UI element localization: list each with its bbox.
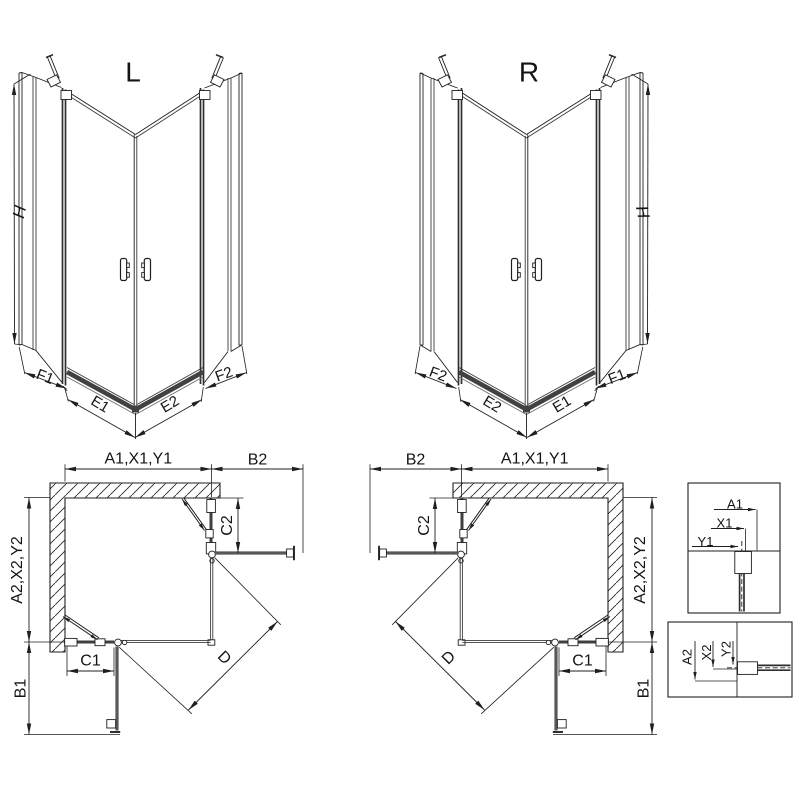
label-d: D — [439, 648, 459, 668]
drawing-line — [231, 73, 242, 78]
corner-cap — [132, 406, 139, 413]
dimension-line — [396, 622, 485, 711]
drawing-line — [201, 387, 203, 402]
label-top-width: A1,X1,Y1 — [501, 450, 569, 467]
hinge-block — [200, 91, 211, 100]
label-b2: B2 — [406, 451, 426, 468]
drawing-line — [46, 55, 53, 58]
drawing-line — [481, 647, 554, 714]
door-end-bracket — [287, 549, 294, 557]
support-arm — [64, 615, 99, 638]
support-arm — [574, 615, 609, 638]
drawing-line — [415, 346, 420, 374]
drawing-line — [640, 73, 643, 74]
support-arm — [469, 499, 492, 531]
label-height: H — [9, 203, 30, 220]
drawing-line — [231, 345, 242, 352]
drawing-line — [459, 94, 527, 138]
wall-profile — [458, 500, 467, 513]
drawing-line — [19, 73, 22, 74]
drawing-line — [609, 55, 616, 58]
door-end-bracket — [380, 549, 387, 557]
drawing-line — [136, 94, 204, 138]
drawing-line — [22, 345, 36, 351]
drawing-line — [215, 558, 281, 625]
door-handle — [557, 720, 566, 728]
support-arm — [576, 617, 611, 640]
drawing-line — [119, 647, 192, 714]
label-a2: A2 — [680, 649, 695, 665]
hinge-knob — [458, 551, 465, 558]
drawing-line — [136, 91, 204, 135]
wall-profile — [738, 662, 758, 675]
hinge-knob — [552, 639, 559, 646]
support-bracket — [206, 530, 213, 538]
label-b1: B1 — [13, 679, 30, 699]
drawing-line — [459, 91, 527, 135]
door-handle — [533, 273, 536, 278]
label-height: H — [632, 204, 653, 221]
hinge-block — [61, 91, 72, 100]
support-bracket — [568, 639, 578, 646]
bottom-sill — [459, 372, 595, 410]
drawing-line — [216, 55, 223, 58]
view-title: L — [125, 57, 141, 88]
view-title: R — [519, 57, 539, 88]
support-arm — [63, 617, 98, 640]
label-c1: C1 — [572, 653, 593, 670]
door-handle — [127, 273, 130, 278]
hinge-knob — [115, 639, 122, 646]
hinge-block — [591, 91, 602, 100]
label-y2: Y2 — [719, 641, 734, 657]
door-handle — [144, 259, 150, 281]
dimension-line — [189, 622, 278, 711]
drawing-line — [527, 91, 597, 135]
drawing-line — [66, 94, 136, 138]
drawing-line — [637, 347, 643, 374]
wall-section — [453, 483, 623, 652]
drawing-line — [19, 347, 25, 374]
wall-profile — [596, 638, 608, 646]
support-bracket — [460, 530, 467, 538]
support-bracket — [95, 639, 105, 646]
door-handle — [533, 263, 536, 268]
wall-profile — [207, 500, 216, 513]
bottom-sill — [67, 372, 203, 410]
wall-profile — [65, 638, 77, 646]
support-arm — [184, 498, 207, 530]
shower-enclosure-diagram-canvas: HF1E1E2F2LHF2E2E1F1RA1,X1,Y1B2A2,X2,Y2B1… — [0, 0, 800, 800]
support-arm — [467, 498, 490, 530]
drawing-line — [459, 387, 461, 402]
drawing-line — [420, 73, 423, 74]
door-handle — [121, 259, 127, 281]
label-side-depth: A2,X2,Y2 — [9, 536, 26, 604]
wall-profile — [735, 552, 752, 574]
drawing-line — [392, 558, 458, 625]
drawing-line — [439, 55, 446, 58]
drawing-line — [242, 346, 247, 374]
door-handle — [142, 263, 145, 268]
technical-drawing-page: HF1E1E2F2LHF2E2E1F1RA1,X1,Y1B2A2,X2,Y2B1… — [0, 0, 800, 800]
plan-view-right: A1,X1,Y1B2A2,X2,Y2B1C2C1D — [370, 450, 657, 734]
hinge-knob — [209, 551, 216, 558]
drawing-line — [626, 345, 640, 351]
label-segment: F1 — [606, 366, 628, 388]
hinge-knob — [546, 640, 550, 644]
drawing-line — [527, 94, 597, 138]
label-side-depth: A2,X2,Y2 — [632, 536, 649, 604]
drawing-line — [239, 73, 242, 74]
label-x2: X2 — [699, 645, 714, 661]
door-handle — [142, 273, 145, 278]
label-d: D — [214, 648, 234, 668]
plan-view-left: A1,X1,Y1B2A2,X2,Y2B1C2C1D — [9, 450, 303, 734]
label-b2: B2 — [248, 451, 268, 468]
door-handle — [107, 720, 116, 728]
iso-view-left: HF1E1E2F2L — [9, 55, 247, 439]
hinge-block — [452, 91, 463, 100]
door-handle — [518, 273, 521, 278]
iso-view-right: HF2E2E1F1R — [415, 55, 653, 439]
drawing-line — [420, 345, 431, 352]
label-segment: F1 — [34, 366, 56, 388]
label-c2: C2 — [219, 515, 236, 536]
door-handle — [512, 259, 518, 281]
support-arm — [182, 499, 205, 531]
door-handle — [518, 263, 521, 268]
detail-box-bottom: A2X2Y2 — [668, 622, 792, 697]
label-c2: C2 — [416, 515, 433, 536]
label-b1: B1 — [636, 679, 653, 699]
hinge-knob — [122, 640, 126, 644]
label-top-width: A1,X1,Y1 — [104, 450, 172, 467]
label-c1: C1 — [80, 653, 101, 670]
detail-box-top: A1X1Y1 — [688, 483, 780, 613]
corner-cap — [523, 406, 530, 413]
drawing-line — [420, 73, 431, 78]
drawing-line — [66, 91, 136, 135]
door-handle — [535, 259, 541, 281]
wall-section — [50, 483, 220, 652]
door-handle — [127, 263, 130, 268]
